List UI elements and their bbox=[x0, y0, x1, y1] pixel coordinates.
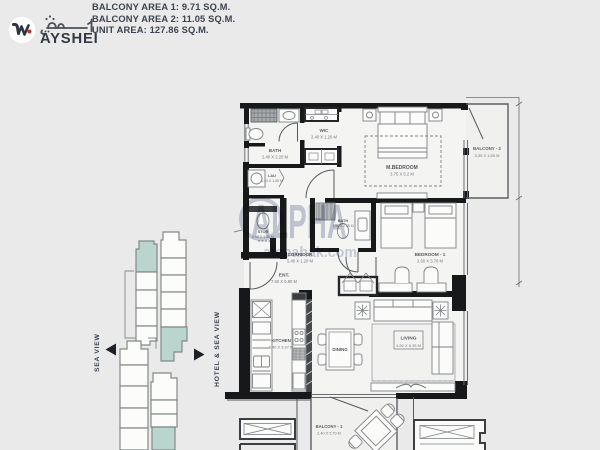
svg-text:2.60 X 3.70 M: 2.60 X 3.70 M bbox=[417, 259, 444, 264]
svg-text:4.80 X 8.35 M: 4.80 X 8.35 M bbox=[396, 343, 421, 348]
svg-text:AYSHEI: AYSHEI bbox=[40, 31, 99, 47]
svg-text:7.60 X 5.80 M: 7.60 X 5.80 M bbox=[271, 279, 298, 284]
svg-text:DINING: DINING bbox=[332, 347, 348, 352]
svg-text:KITCHEN: KITCHEN bbox=[271, 338, 291, 343]
svg-text:WIC: WIC bbox=[320, 128, 330, 133]
svg-text:BALCONY - 1: BALCONY - 1 bbox=[316, 424, 343, 429]
svg-text:BEDROOM - 1: BEDROOM - 1 bbox=[415, 252, 446, 257]
svg-text:2.40 X 2.20 M: 2.40 X 2.20 M bbox=[262, 155, 289, 160]
svg-text:BATH: BATH bbox=[269, 148, 282, 153]
svg-text:SEA VIEW: SEA VIEW bbox=[94, 333, 101, 372]
svg-text:UNIT AREA: 127.86 SQ.M.: UNIT AREA: 127.86 SQ.M. bbox=[92, 25, 209, 35]
svg-text:2.40 X 5.70 M: 2.40 X 5.70 M bbox=[317, 432, 341, 436]
svg-text:2.40 X 1.20 M: 2.40 X 1.20 M bbox=[311, 135, 338, 140]
svg-text:LIVING: LIVING bbox=[401, 336, 417, 342]
svg-text:1.20 X 1.55 M: 1.20 X 1.55 M bbox=[261, 179, 283, 183]
svg-text:3.35 X 1.55 M: 3.35 X 1.55 M bbox=[475, 153, 500, 158]
svg-text:BALCONY AREA 1: 9.71 SQ.M.: BALCONY AREA 1: 9.71 SQ.M. bbox=[92, 2, 230, 12]
svg-text:BALCONY - 2: BALCONY - 2 bbox=[473, 146, 502, 151]
svg-text:ALPHA: ALPHA bbox=[251, 196, 347, 249]
svg-text:HOTEL & SEA VIEW: HOTEL & SEA VIEW bbox=[214, 311, 221, 387]
svg-text:LAU: LAU bbox=[268, 174, 276, 178]
svg-text:alebahak.com: alebahak.com bbox=[263, 245, 357, 261]
svg-text:2.40 X 3.37 M: 2.40 X 3.37 M bbox=[269, 345, 294, 350]
svg-text:M.BEDROOM: M.BEDROOM bbox=[386, 165, 418, 171]
svg-text:3.75 X 5.2 M: 3.75 X 5.2 M bbox=[390, 172, 414, 177]
svg-text:ENT.: ENT. bbox=[279, 273, 289, 279]
svg-text:BALCONY AREA 2: 11.05 SQ.M.: BALCONY AREA 2: 11.05 SQ.M. bbox=[92, 14, 235, 24]
